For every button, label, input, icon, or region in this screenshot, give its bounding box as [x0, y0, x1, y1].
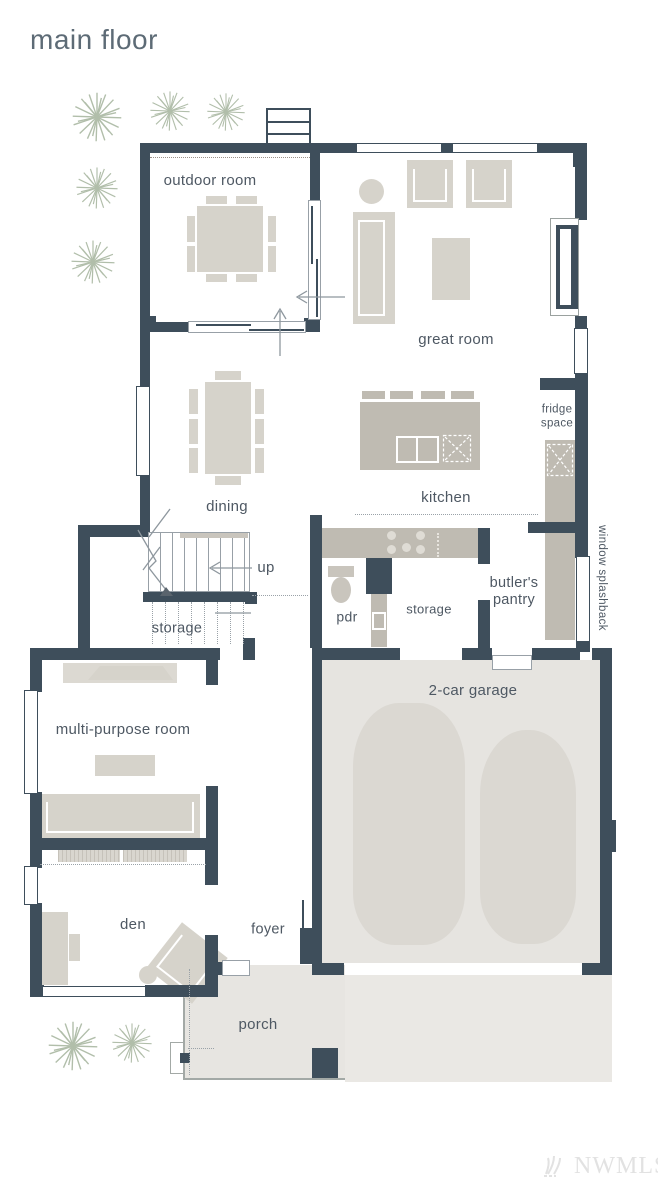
sofa	[353, 212, 395, 324]
wall	[366, 558, 392, 594]
wall	[205, 962, 223, 975]
plant-icon	[111, 1022, 153, 1064]
closet-shelf	[58, 849, 120, 862]
chair	[189, 389, 198, 414]
desk-chair	[69, 934, 80, 961]
chair	[236, 274, 257, 282]
watermark: NWMLS	[542, 1152, 658, 1180]
window	[356, 143, 442, 153]
plant-icon	[75, 166, 119, 210]
burner	[402, 543, 411, 552]
ottoman	[95, 755, 155, 776]
chair	[187, 216, 195, 242]
exterior-steps	[266, 108, 311, 145]
plant-icon	[149, 90, 191, 132]
wall	[601, 820, 616, 852]
closet-shelf	[123, 849, 187, 862]
wall	[78, 525, 90, 658]
plant-icon	[70, 239, 116, 285]
wall	[140, 322, 190, 332]
wall	[205, 838, 218, 885]
vanity-sink	[372, 612, 386, 630]
label-great-room: great room	[418, 331, 494, 349]
kitchen-counter	[318, 528, 478, 558]
plant-icon	[47, 1020, 99, 1072]
wall	[30, 648, 220, 660]
porch-post	[312, 1048, 338, 1078]
burner	[416, 545, 425, 554]
nwmls-logo-icon	[542, 1152, 574, 1180]
sliding-door	[308, 200, 321, 320]
wall	[312, 963, 344, 975]
wall	[85, 525, 145, 537]
label-porch: porch	[238, 1016, 277, 1034]
closet-track	[40, 864, 206, 865]
label-storage-hall: storage	[406, 601, 451, 616]
wall	[310, 515, 322, 648]
chair	[189, 448, 198, 473]
chair	[215, 371, 241, 380]
cooktop-controls	[437, 533, 439, 557]
window	[24, 866, 38, 905]
chair	[189, 419, 198, 444]
front-door	[222, 960, 250, 976]
wall	[600, 648, 612, 975]
sofa	[40, 794, 200, 838]
label-up: up	[257, 559, 274, 577]
wall	[140, 143, 320, 153]
label-den: den	[120, 916, 146, 934]
wall	[206, 786, 218, 842]
plant-icon	[206, 92, 246, 132]
label-fridge-space: fridge space	[541, 403, 573, 430]
wall	[318, 143, 358, 153]
fridge-counter	[545, 440, 575, 528]
outdoor-table	[197, 206, 263, 272]
wall	[30, 838, 218, 850]
burner	[416, 531, 425, 540]
dining-table	[205, 382, 251, 474]
label-storage-understair: storage	[152, 620, 202, 637]
console	[88, 666, 173, 680]
wall	[30, 848, 42, 868]
armchair	[407, 160, 453, 208]
wall	[478, 600, 490, 648]
stair-landing	[180, 533, 248, 538]
wall	[575, 153, 587, 220]
wall	[140, 143, 150, 388]
label-kitchen: kitchen	[421, 489, 471, 507]
window	[574, 328, 588, 374]
porch-edge-line	[189, 969, 190, 1075]
wall	[243, 638, 255, 660]
page-title: main floor	[30, 24, 158, 56]
stool	[451, 391, 474, 399]
understair-line	[230, 602, 231, 644]
desk	[40, 912, 68, 985]
chair	[255, 419, 264, 444]
dashed-cabinet-line	[355, 514, 538, 515]
window	[576, 556, 590, 642]
chair	[255, 448, 264, 473]
wall	[532, 648, 580, 660]
wall	[528, 522, 578, 533]
wall	[300, 928, 313, 964]
chair	[268, 216, 276, 242]
wall	[540, 378, 587, 390]
wall	[143, 592, 255, 602]
driveway	[345, 975, 612, 1082]
window	[42, 986, 146, 997]
chair	[187, 246, 195, 272]
understair-line	[204, 602, 205, 644]
round-table	[359, 179, 384, 204]
chair	[268, 246, 276, 272]
window	[452, 143, 538, 153]
label-garage: 2-car garage	[429, 682, 518, 700]
staircase[interactable]	[148, 532, 250, 592]
car	[480, 730, 576, 944]
wall	[302, 900, 304, 930]
stool	[421, 391, 445, 399]
watermark-text: NWMLS	[574, 1153, 658, 1180]
toilet-bowl	[331, 577, 351, 603]
burner	[387, 545, 396, 554]
garage-entry-door	[492, 655, 532, 670]
wall	[462, 648, 492, 660]
armchair	[466, 160, 512, 208]
stool	[390, 391, 413, 399]
chair	[215, 476, 241, 485]
sliding-door	[188, 321, 306, 333]
porch-edge-line	[188, 1048, 214, 1049]
side-table	[139, 966, 157, 984]
floor-plan: main floor	[0, 0, 658, 1193]
toilet-tank	[328, 566, 354, 577]
label-foyer: foyer	[251, 921, 285, 938]
wall	[245, 592, 257, 604]
wall	[30, 655, 42, 692]
wall	[206, 660, 218, 685]
window	[24, 690, 38, 794]
wall	[582, 963, 612, 975]
label-butlers-pantry: butler's pantry	[490, 575, 539, 609]
wall	[304, 318, 320, 332]
wall	[312, 648, 400, 660]
label-dining: dining	[206, 498, 248, 516]
dashed-roofline	[150, 157, 310, 158]
chair	[236, 196, 257, 204]
chair	[206, 274, 227, 282]
pantry-counter	[545, 533, 575, 640]
label-multi-purpose-room: multi-purpose room	[56, 721, 191, 739]
wall	[30, 903, 42, 997]
chair	[206, 196, 227, 204]
label-outdoor-room: outdoor room	[164, 172, 257, 190]
wall	[478, 528, 490, 564]
plant-icon	[71, 91, 123, 143]
chair	[255, 389, 264, 414]
fireplace	[550, 218, 579, 316]
understair-line	[243, 602, 244, 644]
coffee-table	[432, 238, 470, 300]
understair-line	[217, 602, 218, 644]
burner	[387, 531, 396, 540]
stool	[362, 391, 385, 399]
wall	[312, 648, 322, 975]
label-window-splashback: window splashback	[594, 525, 608, 631]
island-sink	[396, 436, 439, 463]
window	[136, 386, 150, 476]
dashed-opening	[252, 595, 308, 596]
car	[353, 703, 465, 945]
label-pdr: pdr	[336, 609, 357, 626]
